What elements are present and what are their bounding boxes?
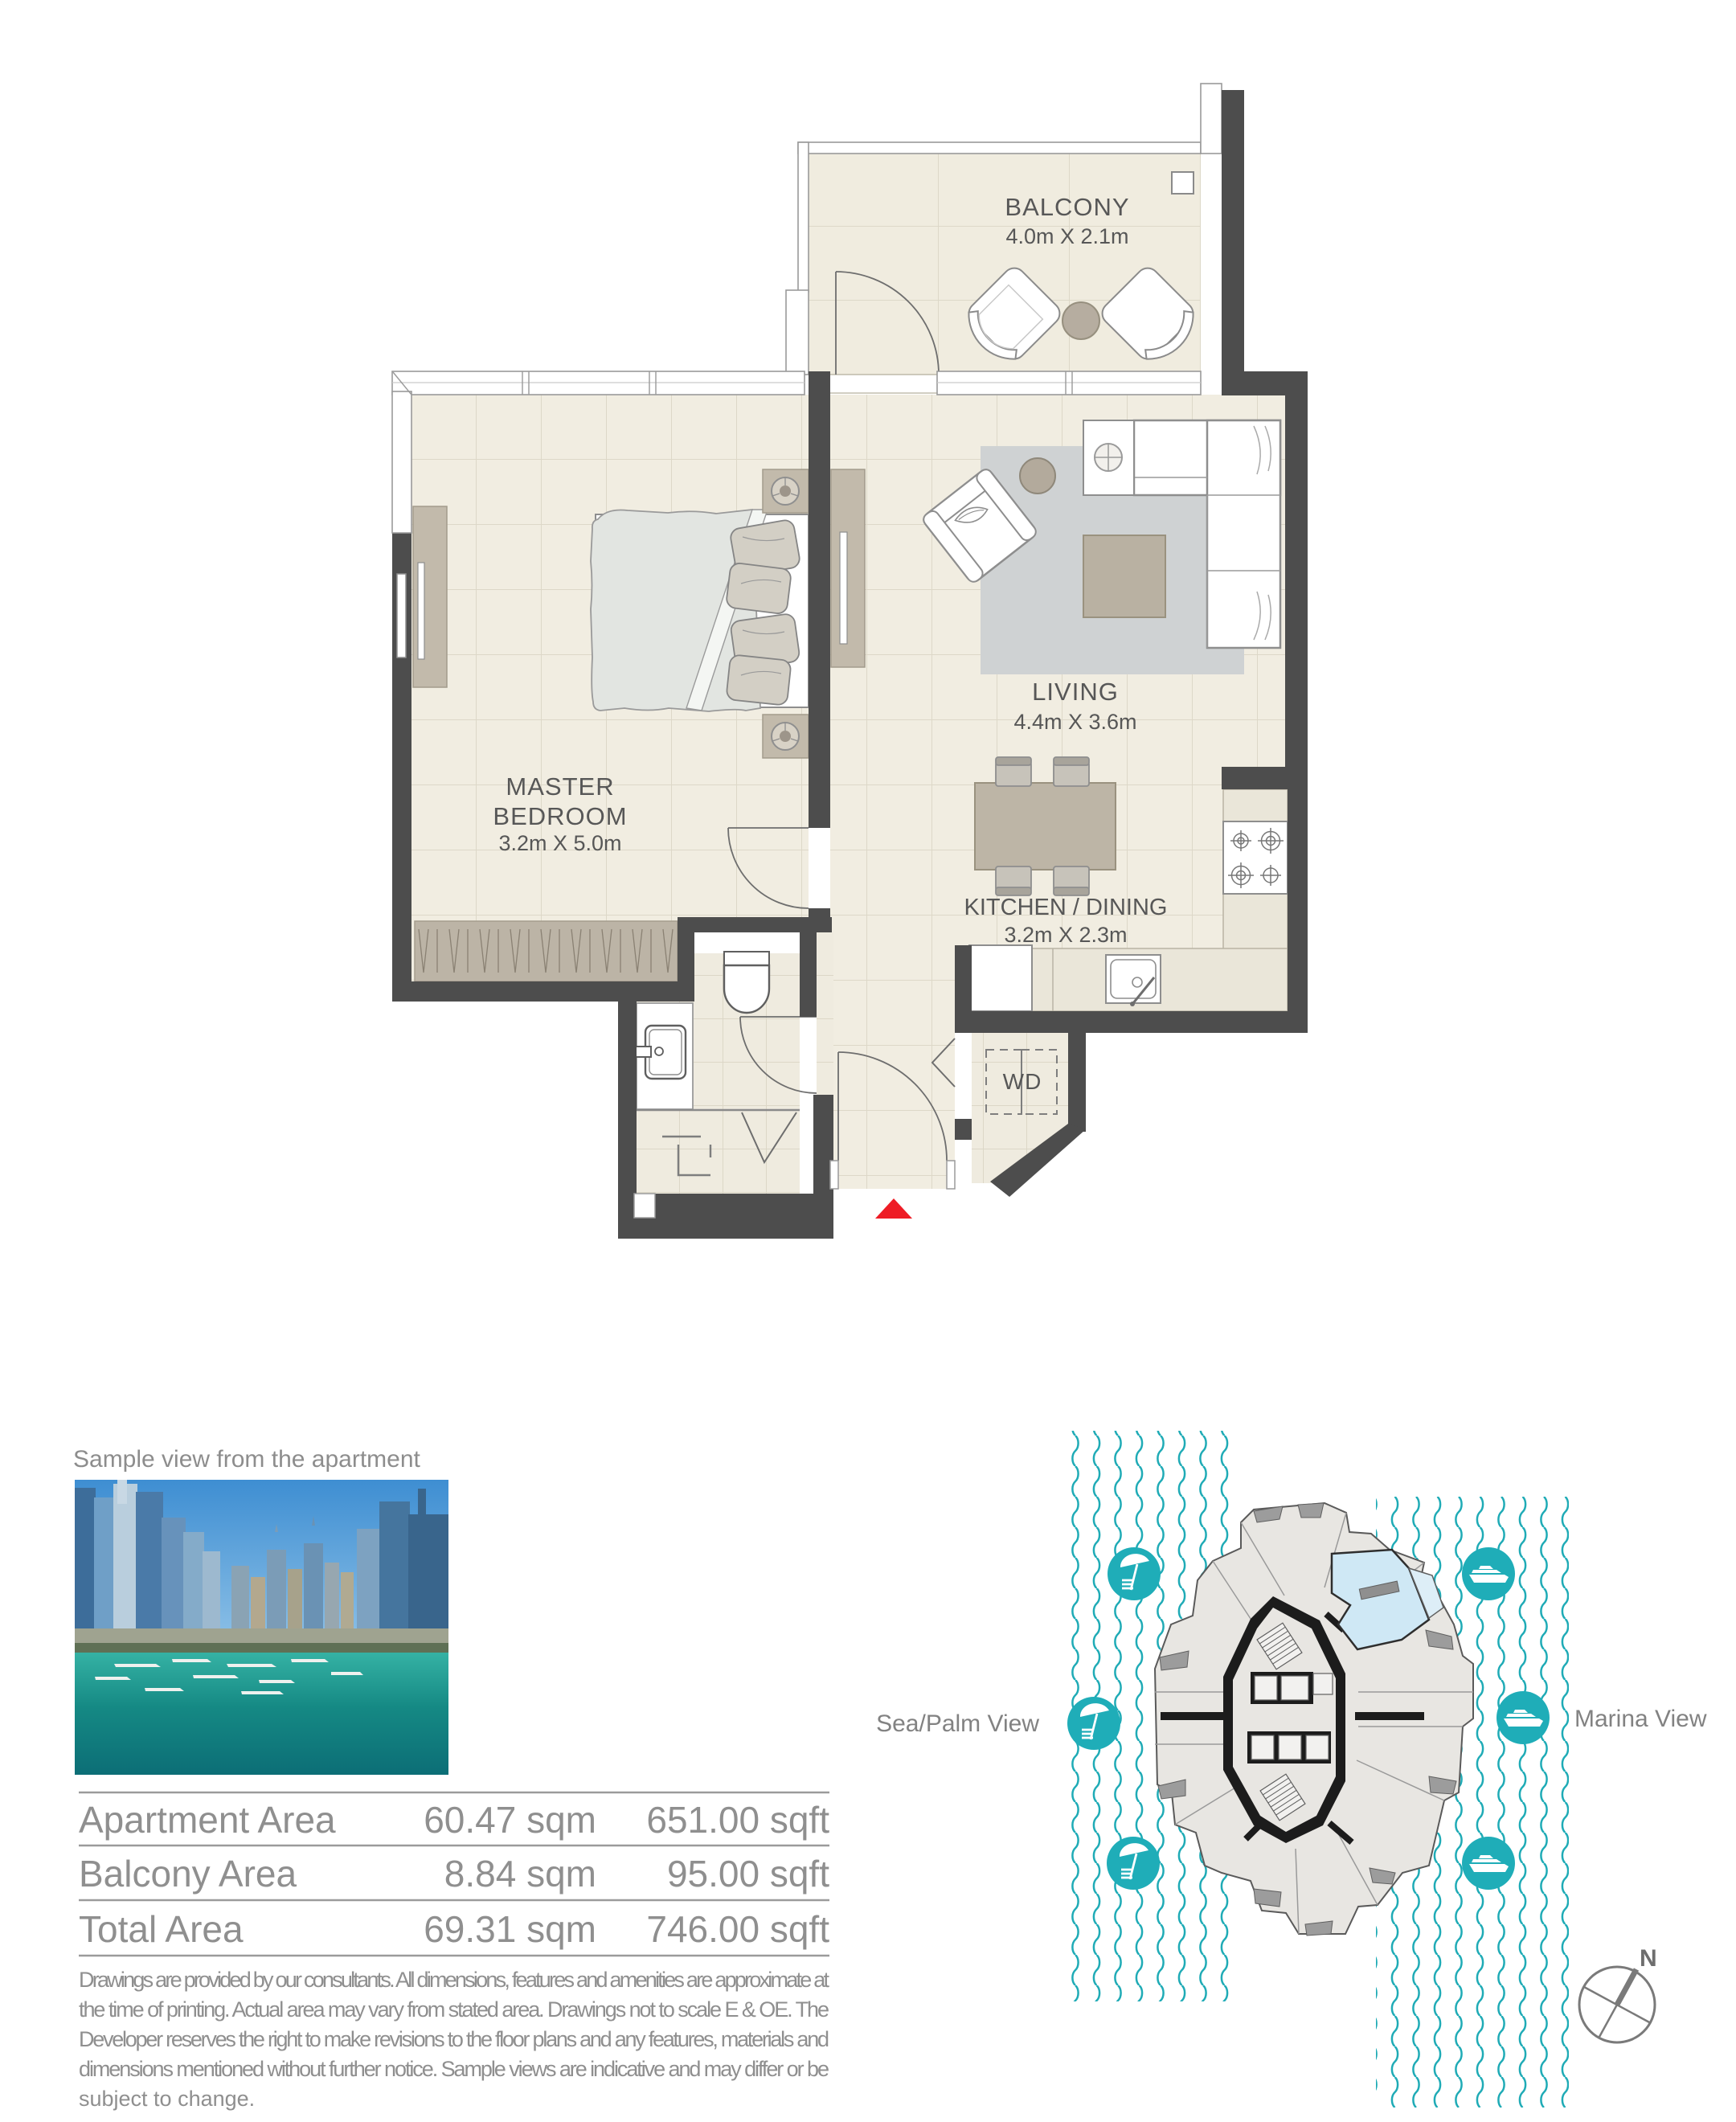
svg-text:LIVING: LIVING <box>1032 678 1119 706</box>
svg-text:Balcony Area: Balcony Area <box>79 1853 297 1895</box>
svg-text:Total Area: Total Area <box>79 1908 244 1950</box>
svg-text:Sea/Palm View: Sea/Palm View <box>876 1710 1039 1737</box>
svg-text:8.84 sqm: 8.84 sqm <box>444 1853 596 1895</box>
svg-text:N: N <box>1640 1945 1657 1972</box>
svg-text:the time of printing. Actual a: the time of printing. Actual area may va… <box>79 1997 829 2022</box>
svg-text:746.00 sqft: 746.00 sqft <box>646 1908 829 1950</box>
svg-text:651.00 sqft: 651.00 sqft <box>646 1799 829 1841</box>
svg-text:BALCONY: BALCONY <box>1005 193 1129 221</box>
svg-text:Drawings are provided by our c: Drawings are provided by our consultants… <box>79 1968 829 1992</box>
svg-text:3.2m X 5.0m: 3.2m X 5.0m <box>498 831 621 855</box>
svg-text:subject to change.: subject to change. <box>79 2087 255 2111</box>
svg-text:95.00 sqft: 95.00 sqft <box>667 1853 829 1895</box>
svg-text:4.0m X 2.1m: 4.0m X 2.1m <box>1005 224 1128 248</box>
svg-text:3.2m X 2.3m: 3.2m X 2.3m <box>1004 923 1127 947</box>
svg-text:69.31 sqm: 69.31 sqm <box>424 1908 596 1950</box>
svg-text:Marina View: Marina View <box>1574 1706 1707 1732</box>
svg-text:dimensions mentioned without f: dimensions mentioned without further not… <box>79 2057 829 2081</box>
svg-text:4.4m X 3.6m: 4.4m X 3.6m <box>1013 710 1136 734</box>
svg-text:Apartment Area: Apartment Area <box>79 1799 336 1841</box>
svg-text:BEDROOM: BEDROOM <box>493 802 627 830</box>
svg-text:Sample view from the apartment: Sample view from the apartment <box>73 1446 421 1473</box>
svg-text:60.47 sqm: 60.47 sqm <box>424 1799 596 1841</box>
svg-text:MASTER: MASTER <box>506 772 614 801</box>
svg-text:KITCHEN / DINING: KITCHEN / DINING <box>964 895 1168 920</box>
svg-text:Developer reserves the right t: Developer reserves the right to make rev… <box>79 2027 829 2051</box>
svg-text:WD: WD <box>1003 1069 1042 1094</box>
